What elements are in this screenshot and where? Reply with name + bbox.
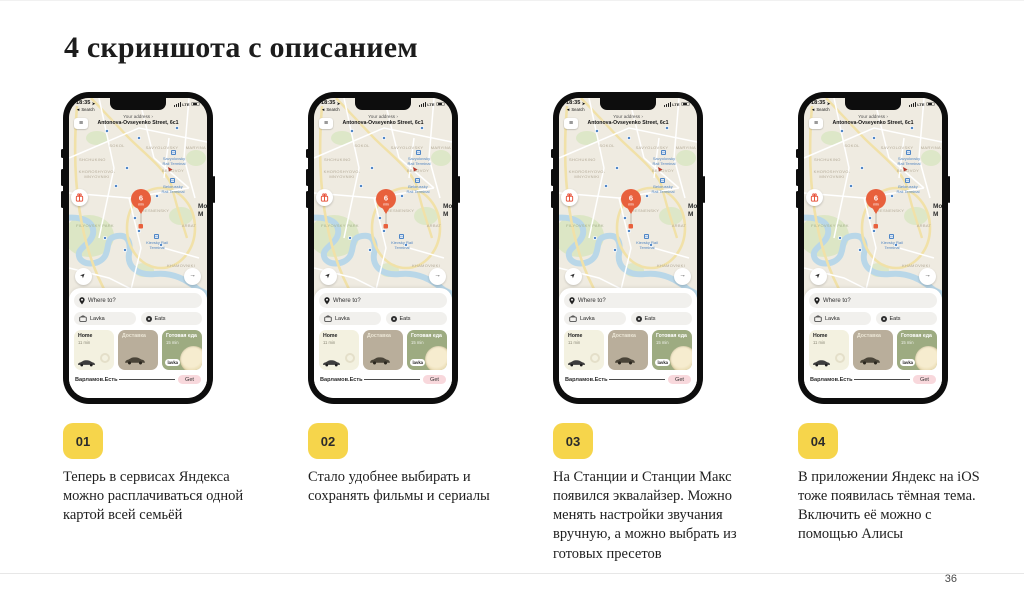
shortcut-card-ready-food[interactable]: Готовая еда 15 min lavka — [162, 330, 202, 370]
app-store-banner: Варламов.Есть Get — [319, 375, 447, 384]
signal-icon — [419, 102, 426, 107]
where-to-placeholder: Where to? — [578, 298, 606, 304]
gift-icon — [810, 193, 819, 202]
where-to-placeholder: Where to? — [88, 298, 116, 304]
screenshot-column: SOKOL SHCHUKINO SAVYOLOVSKY MARYINA BEGO… — [63, 92, 308, 564]
lavka-badge: lavka — [165, 359, 180, 366]
mute-switch — [796, 149, 799, 158]
volume-up-button — [796, 169, 799, 186]
back-to-search-link[interactable]: ◄ Search — [76, 107, 95, 112]
network-type: LTE — [427, 102, 434, 107]
lavka-label: Lavka — [825, 316, 840, 322]
item-number-badge: 03 — [553, 423, 593, 459]
app-store-banner: Варламов.Есть Get — [809, 375, 937, 384]
eats-button[interactable]: Eats — [386, 312, 448, 325]
card-title: Доставка — [612, 334, 645, 340]
pin-icon — [79, 297, 85, 305]
forward-button[interactable]: → — [674, 268, 691, 285]
city-label: Mo — [443, 203, 452, 210]
where-to-input[interactable]: Where to? — [74, 293, 202, 308]
district-label: BEGOVOY — [652, 168, 674, 173]
city-label: Mo — [688, 203, 697, 210]
ring-decoration — [590, 353, 600, 363]
station-label: Rail Terminal — [897, 161, 920, 166]
card-subtitle: 15 min — [411, 340, 444, 345]
shortcut-card-delivery[interactable]: Доставка — [118, 330, 158, 370]
forward-button[interactable]: → — [184, 268, 201, 285]
lavka-badge: lavka — [410, 359, 425, 366]
banner-app-name: Варламов.Есть — [565, 377, 608, 383]
car-icon — [77, 359, 96, 367]
address-label: Your address — [613, 114, 640, 119]
food-photo — [425, 346, 447, 370]
banner-divider — [119, 379, 175, 380]
eats-icon — [146, 316, 152, 322]
my-location-button[interactable]: ➤ — [810, 268, 827, 285]
volume-up-button — [306, 169, 309, 186]
card-title: Доставка — [857, 334, 890, 340]
card-subtitle: 11 min — [78, 340, 111, 345]
eta-unit: min — [873, 203, 879, 207]
station-label: Rail Terminal — [407, 161, 430, 166]
card-title: Доставка — [122, 334, 155, 340]
lavka-icon — [814, 315, 822, 322]
park-label: FILYOVSKY PARK — [76, 223, 114, 228]
address-street: Antonova-Ovseyenko Street, 6с1 — [334, 120, 432, 126]
promo-gift-button[interactable] — [316, 189, 333, 206]
district-label: SOKOL — [109, 143, 125, 148]
location-arrow-icon: ➤ — [814, 272, 822, 280]
district-label: SOKOL — [354, 143, 370, 148]
card-title: Home — [813, 334, 846, 340]
my-location-button[interactable]: ➤ — [565, 268, 582, 285]
banner-app-name: Варламов.Есть — [320, 377, 363, 383]
district-label: BEGOVOY — [407, 168, 429, 173]
eta-unit: min — [628, 203, 634, 207]
back-to-search-link[interactable]: ◄ Search — [566, 107, 585, 112]
card-subtitle: 15 min — [901, 340, 934, 345]
volume-down-button — [306, 191, 309, 208]
station-label: Rail Terminal — [406, 189, 429, 194]
phone-notch — [355, 98, 411, 110]
chevron-right-icon: › — [641, 114, 643, 119]
card-title: Готовая еда — [411, 334, 444, 340]
shortcut-card-home[interactable]: Home 11 min — [564, 330, 604, 370]
my-location-button[interactable]: ➤ — [75, 268, 92, 285]
promo-gift-button[interactable] — [71, 189, 88, 206]
volume-down-button — [796, 191, 799, 208]
district-label: SHCHUKINO — [569, 157, 596, 162]
district-label: BEGOVOY — [162, 168, 184, 173]
phone-notch — [110, 98, 166, 110]
shortcut-card-ready-food[interactable]: Готовая еда 15 min lavka — [897, 330, 937, 370]
eats-button[interactable]: Eats — [141, 312, 203, 325]
eats-button[interactable]: Eats — [876, 312, 938, 325]
address-header[interactable]: Your address › Antonova-Ovseyenko Street… — [334, 114, 432, 126]
battery-icon — [926, 102, 935, 107]
phone-mockup: SOKOL SHCHUKINO SAVYOLOVSKY MARYINA BEGO… — [308, 92, 458, 404]
address-header[interactable]: Your address › Antonova-Ovseyenko Street… — [89, 114, 187, 126]
where-to-placeholder: Where to? — [823, 298, 851, 304]
card-title: Home — [323, 334, 356, 340]
banner-app-name: Варламов.Есть — [75, 377, 118, 383]
screenshot-column: SOKOL SHCHUKINO SAVYOLOVSKY MARYINA BEGO… — [308, 92, 553, 564]
network-type: LTE — [917, 102, 924, 107]
page-number: 36 — [945, 573, 957, 585]
item-description: В приложении Яндекс на iOS тоже появилас… — [798, 468, 990, 545]
chevron-right-icon: › — [151, 114, 153, 119]
volume-up-button — [61, 169, 64, 186]
lavka-button[interactable]: Lavka — [564, 312, 626, 325]
shortcut-card-delivery[interactable]: Доставка — [608, 330, 648, 370]
station-label: Terminal — [639, 245, 654, 250]
item-description: Теперь в сервисах Яндекса можно расплачи… — [63, 468, 255, 525]
park-label: FILYOVSKY PARK — [566, 223, 604, 228]
app-store-banner: Варламов.Есть Get — [74, 375, 202, 384]
station-label: Rail Terminal — [652, 161, 675, 166]
card-subtitle: 11 min — [568, 340, 601, 345]
back-icon: ◄ — [321, 107, 325, 112]
lavka-button[interactable]: Lavka — [809, 312, 871, 325]
item-description: Стало удобнее выбирать и сохранять фильм… — [308, 468, 500, 506]
banner-app-name: Варламов.Есть — [810, 377, 853, 383]
ring-decoration — [835, 353, 845, 363]
lavka-icon — [569, 315, 577, 322]
delivery-car-icon — [369, 356, 391, 365]
card-title: Доставка — [367, 334, 400, 340]
phone-screen: SOKOL SHCHUKINO SAVYOLOVSKY MARYINA BEGO… — [559, 98, 697, 398]
station-label: Terminal — [149, 245, 164, 250]
district-label: BEGOVOY — [897, 168, 919, 173]
menu-icon: ≡ — [79, 120, 83, 127]
card-subtitle: 11 min — [323, 340, 356, 345]
car-icon — [567, 359, 586, 367]
card-title: Готовая еда — [166, 334, 199, 340]
city-label: M — [933, 211, 938, 218]
card-title: Home — [78, 334, 111, 340]
bottom-sheet: Where to? Lavka Eats — [69, 288, 207, 398]
screenshot-column: SOKOL SHCHUKINO SAVYOLOVSKY MARYINA BEGO… — [553, 92, 798, 564]
menu-button[interactable]: ≡ — [74, 118, 88, 129]
eats-icon — [391, 316, 397, 322]
app-store-banner: Варламов.Есть Get — [564, 375, 692, 384]
card-subtitle: 11 min — [813, 340, 846, 345]
car-icon — [322, 359, 341, 367]
district-label: SAVYOLOVSKY — [636, 145, 669, 150]
food-photo — [915, 346, 937, 370]
power-button — [458, 176, 461, 203]
network-type: LTE — [182, 102, 189, 107]
mute-switch — [306, 149, 309, 158]
promo-gift-button[interactable] — [806, 189, 823, 206]
forward-button[interactable]: → — [919, 268, 936, 285]
battery-icon — [436, 102, 445, 107]
banner-divider — [364, 379, 420, 380]
district-label: MNYOVNIKI — [574, 174, 599, 179]
pin-icon — [569, 297, 575, 305]
menu-button[interactable]: ≡ — [564, 118, 578, 129]
eats-button[interactable]: Eats — [631, 312, 693, 325]
lavka-label: Lavka — [335, 316, 350, 322]
signal-icon — [909, 102, 916, 107]
location-arrow-icon: ➤ — [324, 272, 332, 280]
network-type: LTE — [672, 102, 679, 107]
food-photo — [670, 346, 692, 370]
location-services-icon: ➤ — [582, 101, 585, 106]
card-subtitle: 15 min — [656, 340, 689, 345]
forward-button[interactable]: → — [429, 268, 446, 285]
slide: 4 скриншота с описанием — [0, 31, 1024, 605]
status-time: 18:35 — [76, 100, 90, 106]
eats-icon — [636, 316, 642, 322]
location-arrow-icon: ➤ — [79, 272, 87, 280]
card-title: Home — [568, 334, 601, 340]
district-label: ARBAT — [672, 223, 687, 228]
phone-mockup: SOKOL SHCHUKINO SAVYOLOVSKY MARYINA BEGO… — [798, 92, 948, 404]
district-label: SAVYOLOVSKY — [146, 145, 179, 150]
where-to-input[interactable]: Where to? — [319, 293, 447, 308]
ring-decoration — [100, 353, 110, 363]
eta-value: 6 — [629, 194, 633, 203]
lavka-badge: lavka — [900, 359, 915, 366]
district-label: MNYOVNIKI — [819, 174, 844, 179]
back-icon: ◄ — [76, 107, 80, 112]
delivery-car-icon — [859, 356, 881, 365]
where-to-input[interactable]: Where to? — [809, 293, 937, 308]
power-button — [703, 176, 706, 203]
where-to-input[interactable]: Where to? — [564, 293, 692, 308]
chevron-right-icon: › — [396, 114, 398, 119]
phone-mockup: SOKOL SHCHUKINO SAVYOLOVSKY MARYINA BEGO… — [63, 92, 213, 404]
address-label: Your address — [368, 114, 395, 119]
lavka-button[interactable]: Lavka — [74, 312, 136, 325]
car-icon — [812, 359, 831, 367]
district-label: MNYOVNIKI — [329, 174, 354, 179]
phone-notch — [845, 98, 901, 110]
lavka-label: Lavka — [90, 316, 105, 322]
card-title: Готовая еда — [656, 334, 689, 340]
eta-value: 6 — [384, 194, 388, 203]
item-number-badge: 02 — [308, 423, 348, 459]
address-street: Antonova-Ovseyenko Street, 6с1 — [824, 120, 922, 126]
station-label: Terminal — [394, 245, 409, 250]
food-photo — [180, 346, 202, 370]
power-button — [213, 176, 216, 203]
mute-switch — [61, 149, 64, 158]
shortcut-card-ready-food[interactable]: Готовая еда 15 min lavka — [407, 330, 447, 370]
district-label: MARYINA — [676, 145, 696, 150]
eta-value: 6 — [874, 194, 878, 203]
shortcut-card-ready-food[interactable]: Готовая еда 15 min lavka — [652, 330, 692, 370]
city-label: M — [198, 211, 203, 218]
district-label: ARBAT — [182, 223, 197, 228]
menu-icon: ≡ — [569, 120, 573, 127]
station-label: Rail Terminal — [162, 161, 185, 166]
mute-switch — [551, 149, 554, 158]
city-label: M — [688, 211, 693, 218]
eta-unit: min — [383, 203, 389, 207]
eats-label: Eats — [890, 316, 901, 322]
signal-icon — [174, 102, 181, 107]
park-label: FILYOVSKY PARK — [811, 223, 849, 228]
banner-divider — [609, 379, 665, 380]
address-label: Your address — [858, 114, 885, 119]
station-label: Rail Terminal — [651, 189, 674, 194]
menu-button[interactable]: ≡ — [809, 118, 823, 129]
phone-notch — [600, 98, 656, 110]
eta-unit: min — [138, 203, 144, 207]
eats-label: Eats — [645, 316, 656, 322]
back-icon: ◄ — [811, 107, 815, 112]
bottom-sheet: Where to? Lavka Eats — [804, 288, 942, 398]
shortcut-card-home[interactable]: Home 11 min — [319, 330, 359, 370]
lavka-label: Lavka — [580, 316, 595, 322]
address-header[interactable]: Your address › Antonova-Ovseyenko Street… — [824, 114, 922, 126]
bottom-sheet: Where to? Lavka Eats — [559, 288, 697, 398]
address-street: Antonova-Ovseyenko Street, 6с1 — [579, 120, 677, 126]
shortcut-card-home[interactable]: Home 11 min — [809, 330, 849, 370]
where-to-placeholder: Where to? — [333, 298, 361, 304]
screenshot-column: SOKOL SHCHUKINO SAVYOLOVSKY MARYINA BEGO… — [798, 92, 1024, 564]
back-icon: ◄ — [566, 107, 570, 112]
lavka-icon — [79, 315, 87, 322]
district-label: SOKOL — [599, 143, 615, 148]
get-button[interactable]: Get — [178, 375, 201, 384]
arrow-right-icon: → — [189, 273, 196, 280]
district-label: MARYINA — [921, 145, 941, 150]
battery-icon — [191, 102, 200, 107]
shortcut-card-delivery[interactable]: Доставка — [363, 330, 403, 370]
power-button — [948, 176, 951, 203]
get-button[interactable]: Get — [913, 375, 936, 384]
district-label: SOKOL — [844, 143, 860, 148]
phone-screen: SOKOL SHCHUKINO SAVYOLOVSKY MARYINA BEGO… — [69, 98, 207, 398]
shortcut-card-delivery[interactable]: Доставка — [853, 330, 893, 370]
screenshots-row: SOKOL SHCHUKINO SAVYOLOVSKY MARYINA BEGO… — [63, 92, 1024, 564]
promo-gift-button[interactable] — [561, 189, 578, 206]
city-label: Mo — [198, 203, 207, 210]
battery-icon — [681, 102, 690, 107]
address-street: Antonova-Ovseyenko Street, 6с1 — [89, 120, 187, 126]
card-subtitle: 15 min — [166, 340, 199, 345]
item-number-badge: 04 — [798, 423, 838, 459]
delivery-car-icon — [124, 356, 146, 365]
arrow-right-icon: → — [679, 273, 686, 280]
district-label: MARYINA — [186, 145, 206, 150]
district-label: ARBAT — [427, 223, 442, 228]
volume-up-button — [551, 169, 554, 186]
ring-decoration — [345, 353, 355, 363]
card-title: Готовая еда — [901, 334, 934, 340]
location-services-icon: ➤ — [827, 101, 830, 106]
eats-label: Eats — [400, 316, 411, 322]
menu-icon: ≡ — [324, 120, 328, 127]
city-label: Mo — [933, 203, 942, 210]
district-label: MNYOVNIKI — [84, 174, 109, 179]
phone-screen: SOKOL SHCHUKINO SAVYOLOVSKY MARYINA BEGO… — [804, 98, 942, 398]
eta-value: 6 — [139, 194, 143, 203]
location-arrow-icon: ➤ — [569, 272, 577, 280]
item-description: На Станции и Станции Макс появился эквал… — [553, 468, 745, 564]
status-time: 18:35 — [811, 100, 825, 106]
lavka-button[interactable]: Lavka — [319, 312, 381, 325]
district-label: SAVYOLOVSKY — [391, 145, 424, 150]
station-label: Rail Terminal — [161, 189, 184, 194]
bottom-sheet: Where to? Lavka Eats — [314, 288, 452, 398]
district-label: SHCHUKINO — [324, 157, 351, 162]
phone-screen: SOKOL SHCHUKINO SAVYOLOVSKY MARYINA BEGO… — [314, 98, 452, 398]
lavka-icon — [324, 315, 332, 322]
district-label: SHCHUKINO — [79, 157, 106, 162]
station-label: Terminal — [884, 245, 899, 250]
my-location-button[interactable]: ➤ — [320, 268, 337, 285]
district-label: MARYINA — [431, 145, 451, 150]
back-to-search-link[interactable]: ◄ Search — [321, 107, 340, 112]
district-label: SAVYOLOVSKY — [881, 145, 914, 150]
signal-icon — [664, 102, 671, 107]
shortcut-card-home[interactable]: Home 11 min — [74, 330, 114, 370]
back-to-search-link[interactable]: ◄ Search — [811, 107, 830, 112]
gift-icon — [75, 193, 84, 202]
eats-label: Eats — [155, 316, 166, 322]
location-services-icon: ➤ — [337, 101, 340, 106]
gift-icon — [565, 193, 574, 202]
city-label: M — [443, 211, 448, 218]
address-header[interactable]: Your address › Antonova-Ovseyenko Street… — [579, 114, 677, 126]
item-number-badge: 01 — [63, 423, 103, 459]
lavka-badge: lavka — [655, 359, 670, 366]
address-label: Your address — [123, 114, 150, 119]
chevron-right-icon: › — [886, 114, 888, 119]
status-time: 18:35 — [321, 100, 335, 106]
phone-mockup: SOKOL SHCHUKINO SAVYOLOVSKY MARYINA BEGO… — [553, 92, 703, 404]
get-button[interactable]: Get — [668, 375, 691, 384]
district-label: ARBAT — [917, 223, 932, 228]
arrow-right-icon: → — [924, 273, 931, 280]
gift-icon — [320, 193, 329, 202]
pin-icon — [814, 297, 820, 305]
location-services-icon: ➤ — [92, 101, 95, 106]
district-label: SHCHUKINO — [814, 157, 841, 162]
menu-button[interactable]: ≡ — [319, 118, 333, 129]
arrow-right-icon: → — [434, 273, 441, 280]
eats-icon — [881, 316, 887, 322]
status-time: 18:35 — [566, 100, 580, 106]
menu-icon: ≡ — [814, 120, 818, 127]
volume-down-button — [61, 191, 64, 208]
park-label: FILYOVSKY PARK — [321, 223, 359, 228]
delivery-car-icon — [614, 356, 636, 365]
slide-title: 4 скриншота с описанием — [64, 31, 1024, 65]
banner-divider — [854, 379, 910, 380]
pin-icon — [324, 297, 330, 305]
station-label: Rail Terminal — [896, 189, 919, 194]
get-button[interactable]: Get — [423, 375, 446, 384]
volume-down-button — [551, 191, 554, 208]
